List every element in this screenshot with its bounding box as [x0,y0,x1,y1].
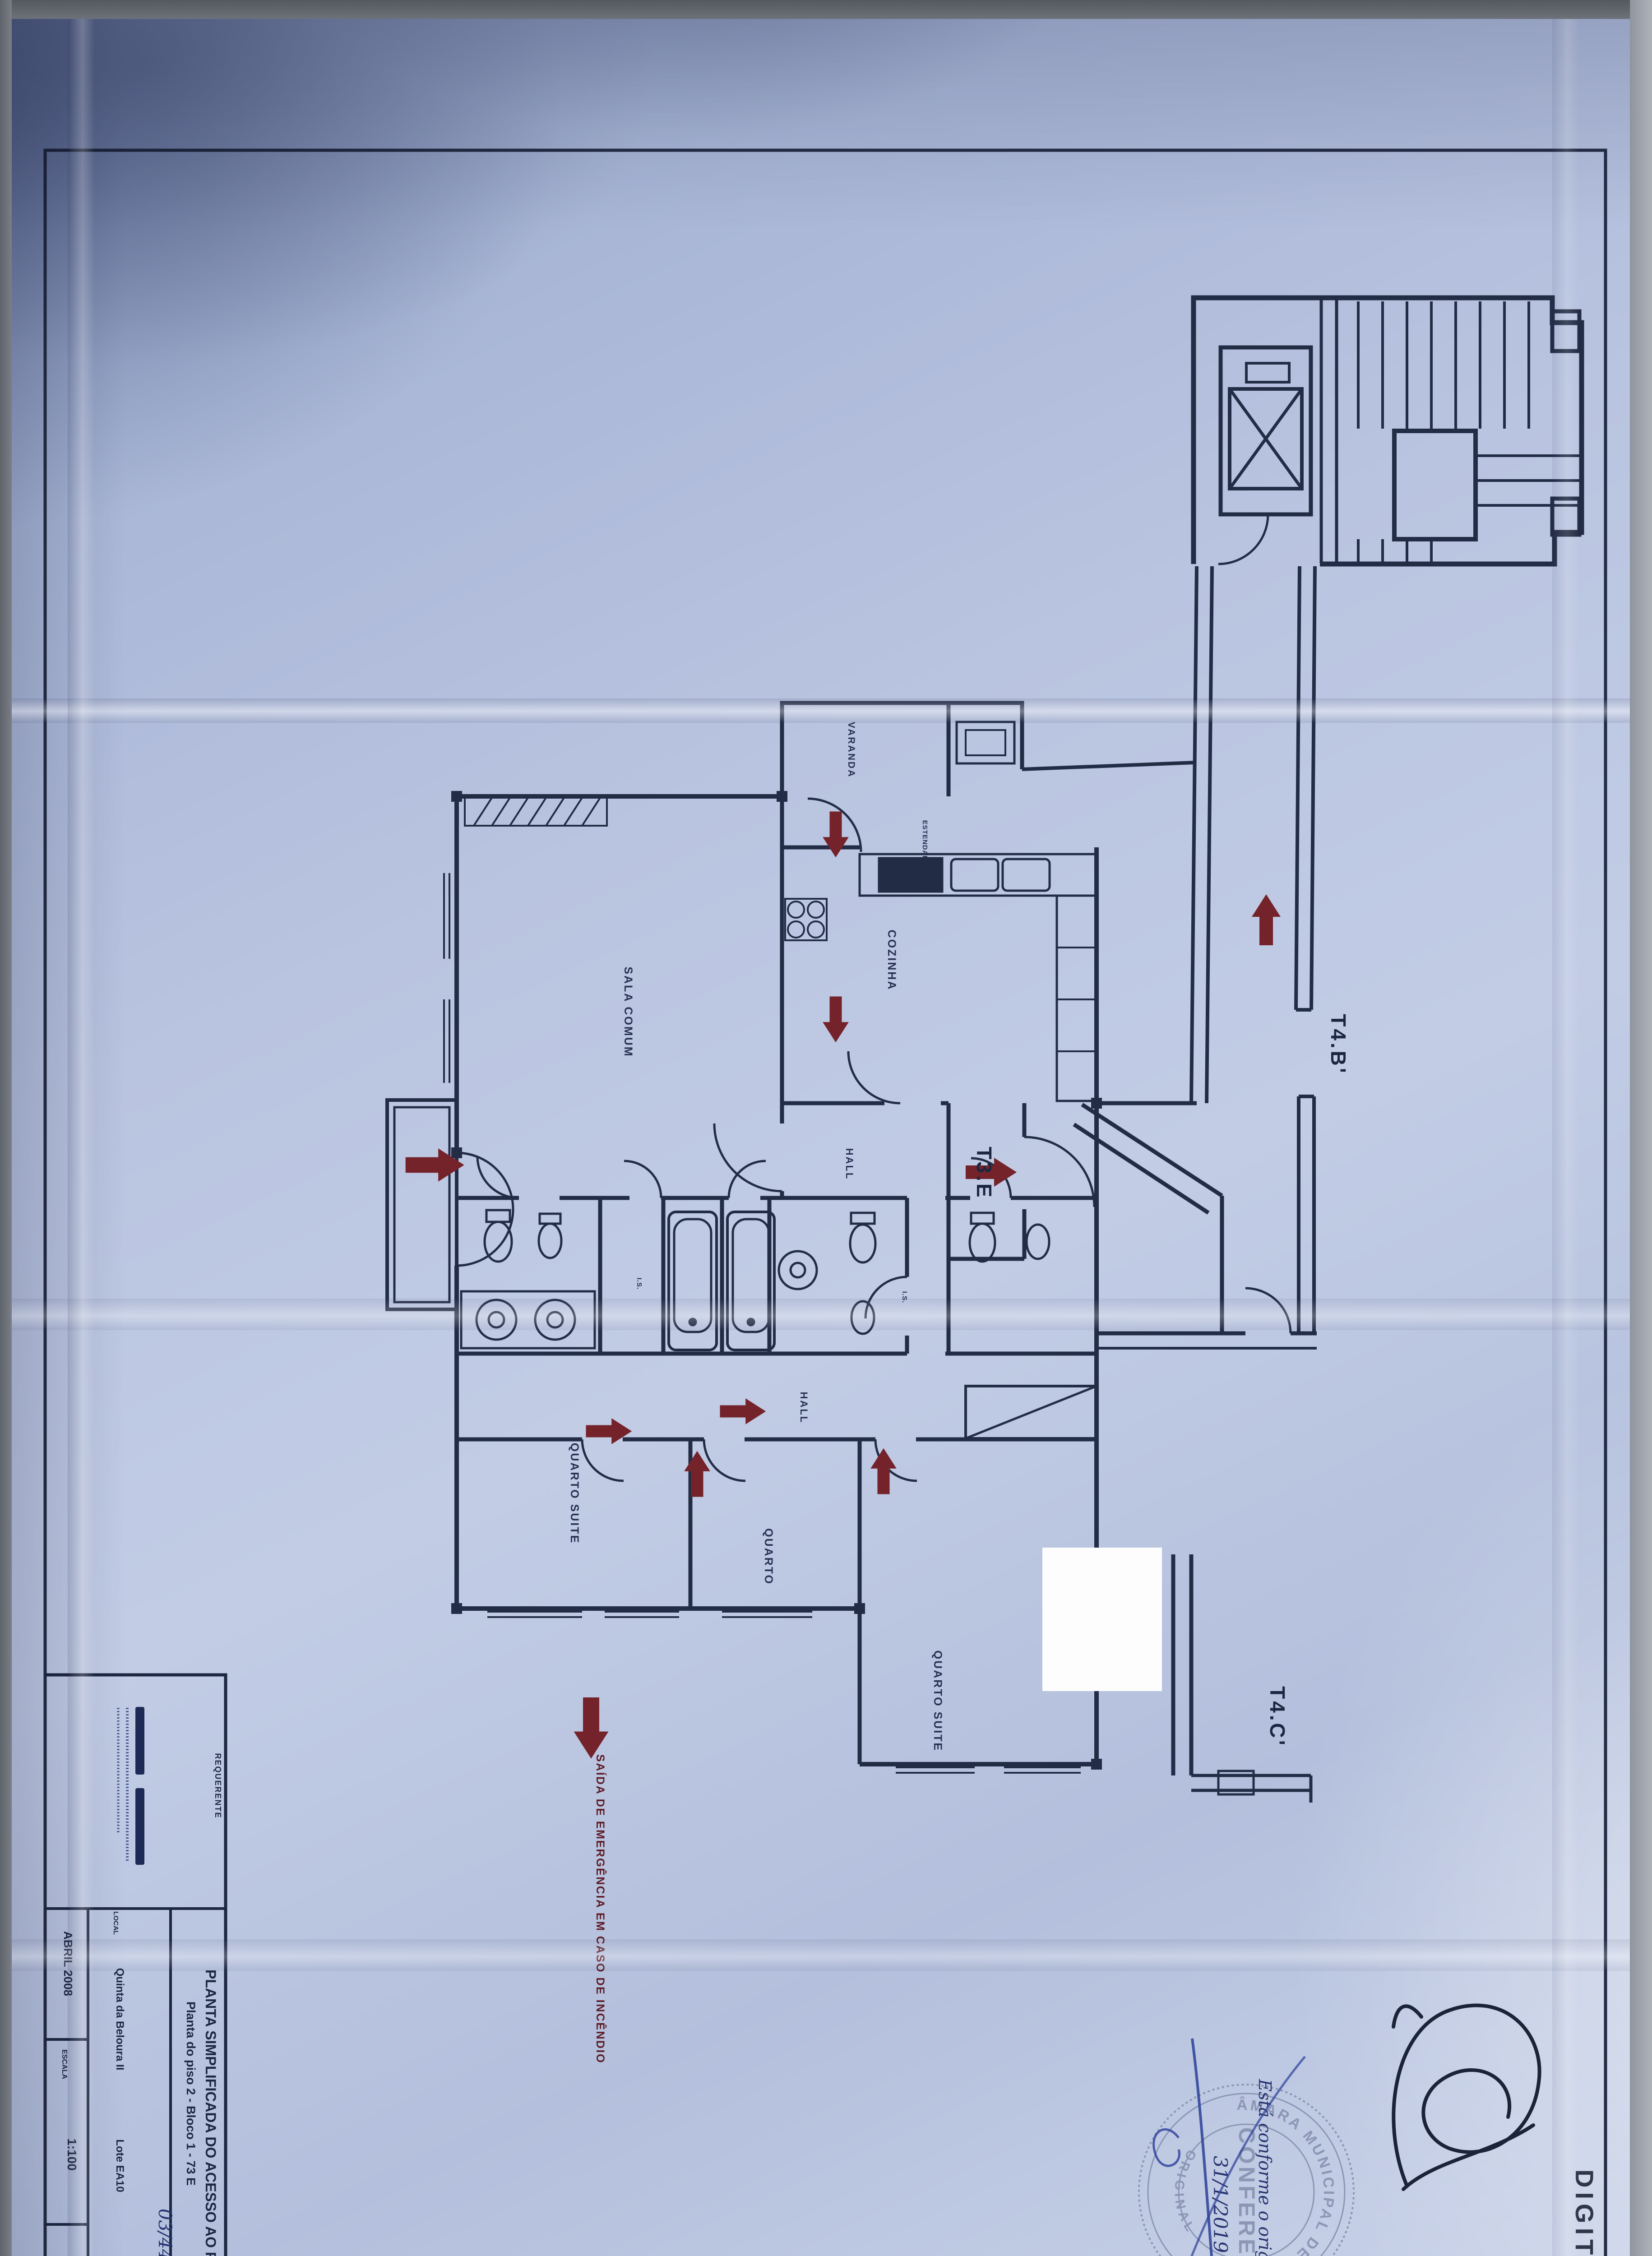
label-t4c: T4.C' [1266,1686,1289,1747]
label-sala: SALA COMUM [622,966,634,1057]
stair-landing [1394,431,1476,539]
municipal-stamp: CÂMARA MUNICIPAL DE SINTRA ORIGINAL CONF… [1139,2039,1354,2256]
hatched-window-band [465,798,607,826]
label-cozinha: COZINHA [885,930,898,991]
terrace [387,1100,457,1309]
stamp-pen-notes: Está conforme o original 31/1/2019 [1154,2039,1305,2256]
handwritten-annotations: 03/4483/2001 FTH 21 [154,2209,204,2256]
drawing-title: PLANTA SIMPLIFICADA DO ACESSO AO FOGO [203,1969,219,2256]
exit-arrow [823,997,849,1043]
label-quarto: QUARTO [762,1528,775,1585]
drawing-subtitle: Planta do piso 2 - Bloco 1 - 73 E [184,2002,198,2186]
label-hall-lower: HALL [798,1392,810,1424]
label-is-2: I.S. [901,1291,908,1304]
exit-arrow [870,1448,897,1494]
windows [444,873,1081,1773]
label-t4b: T4.B' [1327,1014,1350,1075]
emergency-exit-arrow [574,1697,609,1759]
exit-arrow [823,812,849,858]
label-quarto-suite-left: QUARTO SUITE [568,1443,581,1544]
access-corridor [1191,566,1315,1333]
local-value: Quinta da Beloura II [114,1968,126,2071]
exit-arrow [720,1398,766,1424]
white-redaction-box [1042,1548,1162,1691]
drawing-frame [45,150,1606,2256]
floor-plan-drawing: SALA COMUM COZINHA VARANDA ESTENDAL HALL… [0,0,1652,2256]
digitalizado-mark: DIGITALIZADO [1570,2169,1599,2256]
requerente-label: REQUERENTE [213,1753,222,1818]
label-hall-upper: HALL [844,1148,855,1180]
stamp-note-1: Está conforme o original [1255,2079,1275,2256]
scale-value: 1:100 [65,2138,79,2171]
stamp-ring-text-2: ORIGINAL [1171,2147,1199,2237]
label-is-1: I.S. [635,1278,643,1290]
signature [1393,2005,1540,2189]
local-value-2: Lote EA10 [114,2139,126,2192]
label-quarto-suite-bottom: QUARTO SUITE [931,1650,944,1752]
scanned-floor-plan-photo: SALA COMUM COZINHA VARANDA ESTENDAL HALL… [0,0,1652,2256]
door-arc [1218,514,1268,564]
svg-text:ORIGINAL: ORIGINAL [1171,2147,1199,2237]
requerente-logo [118,1707,144,1865]
label-varanda: VARANDA [846,722,856,778]
stair-core [1194,298,1582,564]
door-arcs [457,799,1094,1481]
process-ref: 03/4483/2001 FTH [154,2209,175,2256]
exit-arrow [684,1451,710,1497]
stamp-note-2: 31/1/2019 [1209,2156,1231,2253]
local-label: LOCAL [112,1911,120,1935]
label-t3e: T3.E [972,1146,996,1199]
pillars [451,791,1102,1770]
emergency-note: SAÍDA DE EMERGÊNCIA EM CASO DE INCÊNDIO [594,1754,607,2064]
label-estendal: ESTENDAL [921,820,929,860]
scale-label: ESCALA [60,2049,68,2079]
date-value: ABRIL 2008 [61,1931,75,1996]
bathroom-kitchen-fixtures [461,858,1050,1350]
exit-arrow [1252,894,1281,945]
